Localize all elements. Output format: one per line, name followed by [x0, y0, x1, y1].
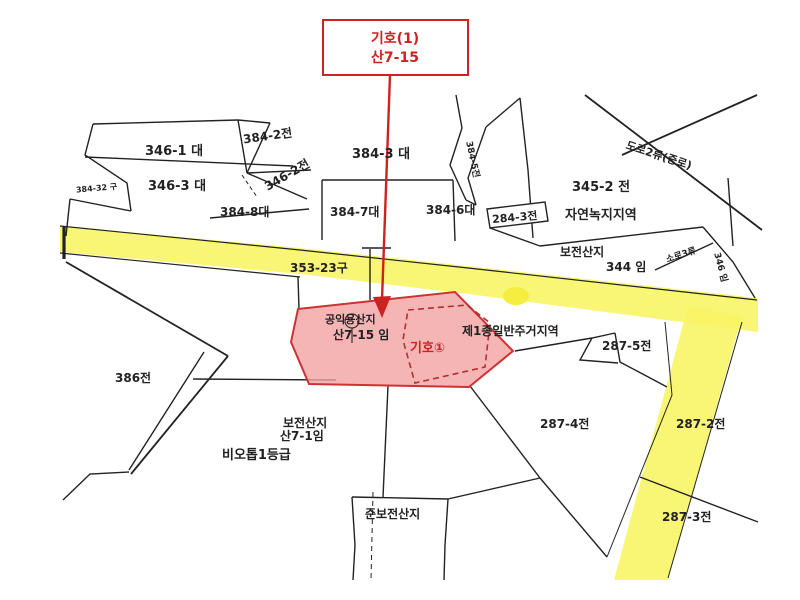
highlighted-parcel	[291, 292, 513, 387]
parcel-label-346-1: 346-1 대	[145, 144, 203, 159]
callout-box	[323, 20, 468, 75]
parcel-label-344: 344 임	[606, 260, 646, 274]
zone-label-jun-bojeon: 준보전산지	[365, 506, 420, 521]
zone-label-residential: 제1종일반주거지역	[462, 323, 559, 338]
parcel-label-346-2: 346-2전	[262, 156, 312, 194]
parcel-label-384-32: 384-32 구	[76, 182, 119, 195]
parcel-label-287-4: 287-4전	[540, 416, 589, 431]
callout-line2: 산7-15	[371, 49, 419, 66]
pink-parcel-number: 산7-15 임	[333, 327, 389, 342]
parcel-label-287-2: 287-2전	[676, 416, 725, 431]
road-label-soro3: 소로3류	[665, 245, 698, 265]
parcel-label-384-3: 384-3 대	[352, 147, 410, 162]
parcel-label-287-5: 287-5전	[602, 338, 651, 353]
parcel-label-384-6: 384-6대	[426, 203, 475, 217]
parcel-label-287-3: 287-3전	[662, 509, 711, 524]
road-yellow-blob	[503, 287, 529, 305]
zone-label-nature: 자연녹지지역	[565, 207, 637, 223]
callout-line1: 기호(1)	[371, 31, 419, 47]
road-label-doro2: 도로2류(중로)	[624, 139, 693, 172]
parcel-label-384-8: 384-8대	[220, 205, 269, 219]
parcel-label-384-7: 384-7대	[330, 205, 379, 219]
road-label-353-23: 353-23구	[290, 261, 348, 275]
parcel-label-386: 386전	[115, 370, 151, 385]
parcel-label-345-2: 345-2 전	[572, 179, 630, 195]
map-viewer: 기호(1) 산7-15 346-1 대 384-2전 346-3 대 346-2…	[0, 0, 800, 600]
zone-label-bojeon-upper: 보전산지	[560, 244, 604, 259]
zone-label-bojeon-lower2: 산7-1임	[280, 428, 324, 443]
zone-label-biotope: 비오톱1등급	[222, 447, 291, 463]
pink-zone-line1: 공익용산지	[325, 312, 376, 326]
parcel-label-346-3: 346-3 대	[148, 179, 206, 194]
pink-giho-marker: 기호①	[410, 341, 445, 356]
cadastral-map: 기호(1) 산7-15 346-1 대 384-2전 346-3 대 346-2…	[0, 0, 800, 600]
zone-label-bojeon-lower1: 보전산지	[283, 415, 327, 430]
